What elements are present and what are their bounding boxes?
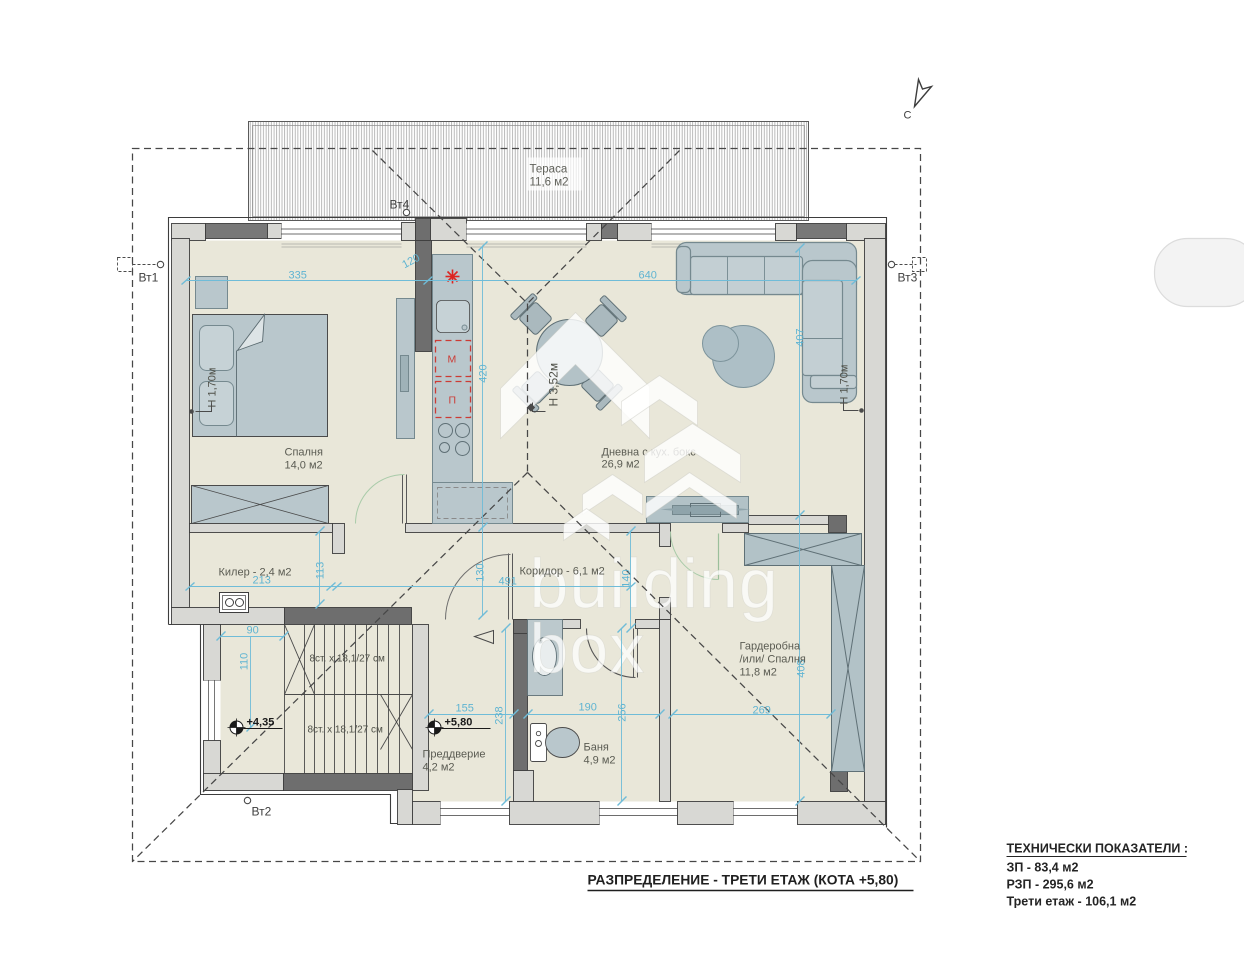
svg-text:269: 269 [753, 705, 771, 717]
svg-text:8ст. х 18,1/27 см: 8ст. х 18,1/27 см [308, 725, 384, 736]
svg-text:113: 113 [315, 562, 327, 580]
svg-text:+5,80: +5,80 [445, 717, 473, 729]
svg-text:Гардеробна: Гардеробна [740, 641, 801, 653]
svg-text:130: 130 [475, 563, 487, 581]
svg-text:256: 256 [617, 703, 629, 721]
svg-text:Н 1,70м: Н 1,70м [207, 368, 219, 408]
svg-text:Трети етаж - 106,1 м2: Трети етаж - 106,1 м2 [1007, 895, 1137, 909]
svg-text:Килер - 2,4 м2: Килер - 2,4 м2 [219, 567, 292, 579]
svg-text:М: М [448, 354, 457, 366]
svg-text:РЗП - 295,6 м2: РЗП - 295,6 м2 [1007, 878, 1094, 892]
svg-text:335: 335 [289, 270, 307, 282]
svg-text:491: 491 [499, 576, 517, 588]
svg-text:420: 420 [478, 364, 490, 382]
svg-text:11,8 м2: 11,8 м2 [740, 667, 777, 679]
svg-text:П: П [449, 395, 457, 407]
svg-text:140: 140 [621, 569, 633, 587]
svg-text:Коридор - 6,1 м2: Коридор - 6,1 м2 [520, 566, 605, 578]
svg-text:14,0 м2: 14,0 м2 [285, 460, 323, 472]
svg-text:/или/ Спалня: /или/ Спалня [740, 654, 806, 666]
svg-text:ЗП - 83,4 м2: ЗП - 83,4 м2 [1007, 861, 1079, 875]
svg-text:Преддверие: Преддверие [423, 749, 486, 761]
svg-text:8ст. х 18,1/27 см: 8ст. х 18,1/27 см [310, 654, 386, 665]
svg-text:190: 190 [579, 702, 597, 714]
svg-text:С: С [904, 110, 912, 122]
svg-text:Вт3: Вт3 [898, 271, 918, 285]
svg-text:Вт2: Вт2 [252, 805, 272, 819]
svg-text:РАЗПРЕДЕЛЕНИЕ - ТРЕТИ ЕТАЖ (КО: РАЗПРЕДЕЛЕНИЕ - ТРЕТИ ЕТАЖ (КОТА +5,80) [588, 873, 899, 888]
svg-text:Тераса: Тераса [530, 164, 568, 176]
svg-text:4,9 м2: 4,9 м2 [584, 755, 616, 767]
svg-text:640: 640 [639, 270, 657, 282]
svg-text:Вт1: Вт1 [139, 271, 159, 285]
svg-text:110: 110 [239, 653, 251, 671]
svg-text:407: 407 [795, 328, 807, 346]
svg-text:155: 155 [456, 703, 474, 715]
svg-text:90: 90 [247, 625, 259, 637]
svg-text:238: 238 [494, 706, 506, 724]
svg-text:26,9 м2: 26,9 м2 [602, 459, 640, 471]
svg-text:Н 3,52м: Н 3,52м [547, 363, 561, 407]
svg-text:4,2 м2: 4,2 м2 [423, 762, 455, 774]
svg-text:ТЕХНИЧЕСКИ ПОКАЗАТЕЛИ :: ТЕХНИЧЕСКИ ПОКАЗАТЕЛИ : [1007, 842, 1189, 856]
svg-text:Н 1,70м: Н 1,70м [839, 365, 851, 405]
svg-text:box: box [530, 610, 646, 688]
svg-text:Баня: Баня [584, 742, 609, 754]
svg-text:+4,35: +4,35 [247, 717, 275, 729]
svg-text:11,6 м2: 11,6 м2 [530, 177, 569, 189]
svg-text:Спалня: Спалня [285, 447, 324, 459]
